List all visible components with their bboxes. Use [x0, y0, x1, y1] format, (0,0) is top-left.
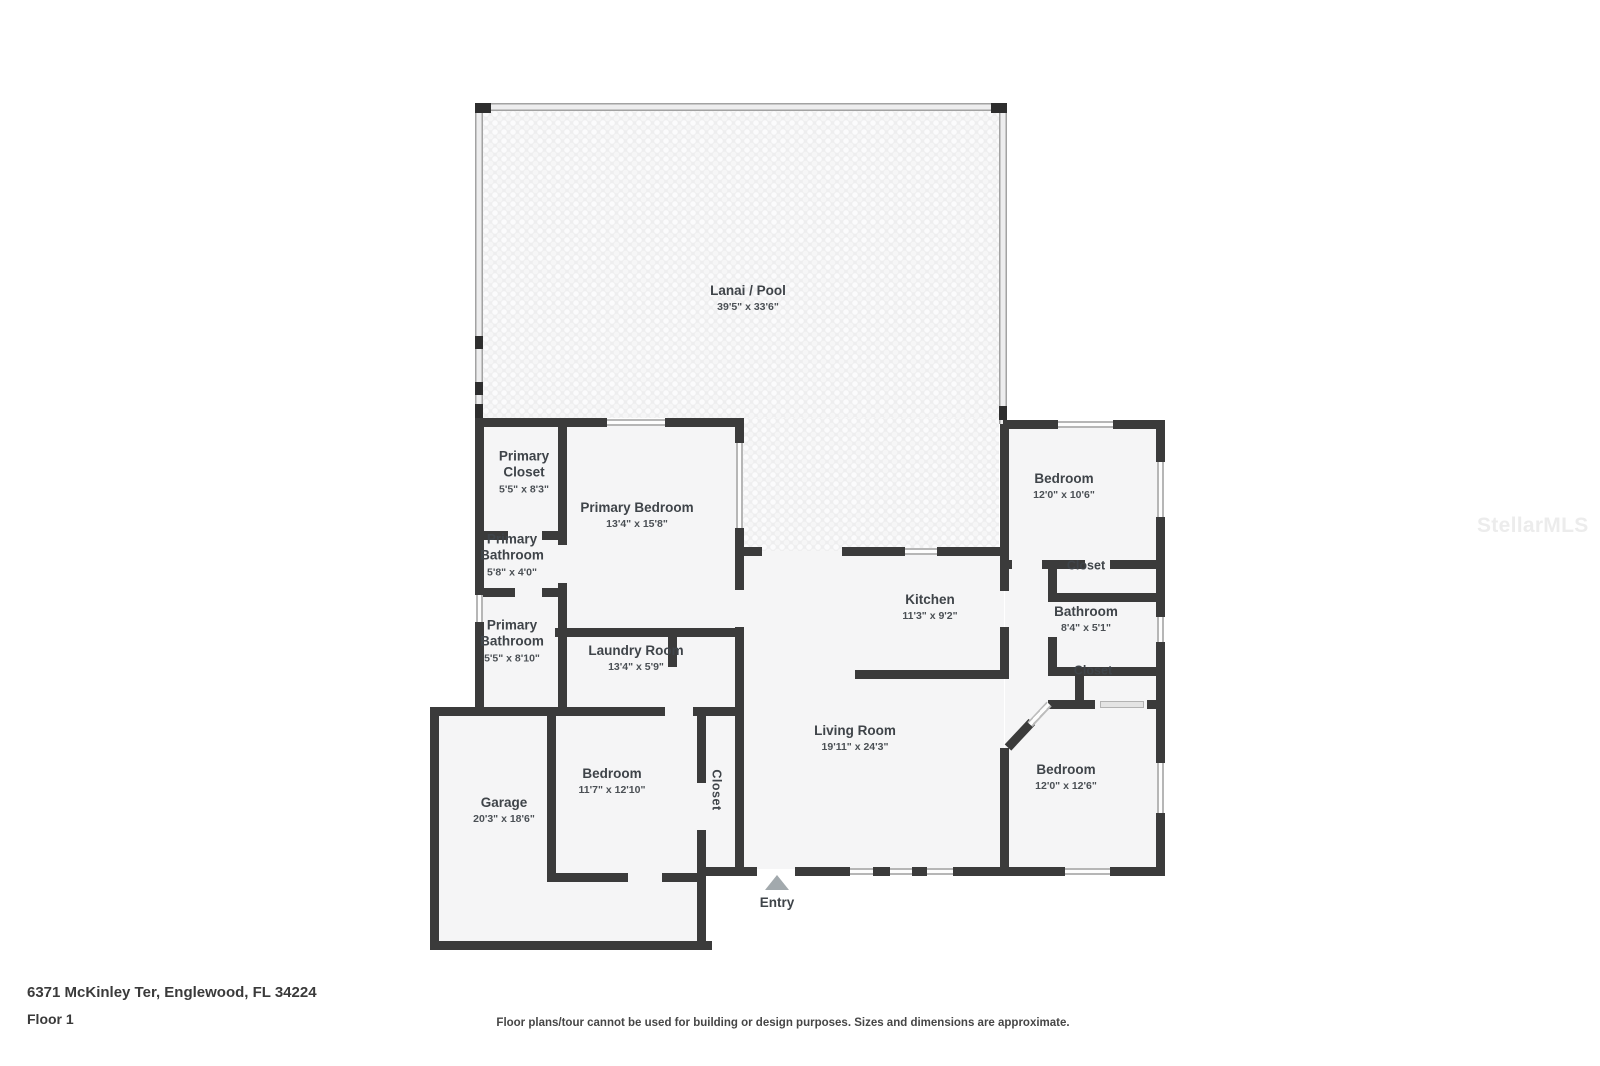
wall-segment	[430, 707, 439, 950]
screen-wall-tick	[475, 382, 483, 395]
entry-label: Entry	[760, 895, 795, 911]
room-label-bedroom-bottom-right: Bedroom 12'0" x 12'6"	[1035, 762, 1097, 792]
room-dims: 5'5" x 8'10"	[465, 652, 559, 664]
room-name: Closet	[708, 769, 723, 810]
lanai-floor-pattern	[743, 418, 999, 551]
room-name: Laundry Room	[588, 643, 683, 659]
room-name: Bedroom	[1033, 471, 1095, 487]
wall-segment	[855, 670, 1008, 679]
floor-area	[743, 551, 1004, 869]
wall-segment	[1048, 637, 1057, 676]
room-label-primary-closet: Primary Closet 5'5" x 8'3"	[482, 449, 566, 496]
wall-segment	[1048, 560, 1057, 602]
wall-segment	[1003, 420, 1058, 429]
wall-segment	[735, 418, 744, 443]
window	[1157, 617, 1164, 642]
wall-segment	[937, 547, 1008, 556]
wall-segment	[953, 867, 1008, 876]
wall-segment	[1008, 867, 1065, 876]
room-name: Lanai / Pool	[710, 283, 786, 299]
screen-wall-tick	[999, 406, 1007, 420]
room-label-primary-bathroom-lower: Primary Bathroom 5'5" x 8'10"	[465, 618, 559, 665]
wall-segment	[735, 716, 744, 867]
wall-segment	[1000, 424, 1009, 560]
room-name: Closet	[1074, 663, 1112, 678]
room-dims: 39'5" x 33'6"	[710, 301, 786, 313]
room-label-living-room: Living Room 19'11" x 24'3"	[814, 723, 896, 753]
wall-segment	[697, 707, 706, 783]
room-dims: 12'0" x 10'6"	[1033, 489, 1095, 501]
room-dims: 11'3" x 9'2"	[902, 610, 957, 622]
window	[850, 868, 873, 875]
entry-arrow-icon	[765, 875, 789, 890]
lanai-floor-pattern	[483, 111, 999, 418]
room-name: Bathroom	[1054, 604, 1118, 620]
wall-segment	[697, 830, 706, 950]
room-name: Primary Bedroom	[580, 500, 693, 516]
screen-wall	[475, 111, 483, 418]
wall-segment	[430, 941, 712, 950]
wall-segment	[665, 418, 743, 427]
wall-segment	[912, 867, 927, 876]
floor-plan-canvas: Lanai / Pool 39'5" x 33'6" Primary Close…	[0, 0, 1600, 1066]
room-dims: 12'0" x 12'6"	[1035, 780, 1097, 792]
room-name: Kitchen	[902, 592, 957, 608]
wall-segment	[558, 583, 567, 716]
room-dims: 13'4" x 5'9"	[588, 661, 683, 673]
wall-segment	[735, 627, 744, 716]
wall-segment	[555, 628, 743, 637]
room-dims: 5'5" x 8'3"	[482, 483, 566, 495]
wall-segment	[482, 588, 515, 597]
screen-wall-tick	[475, 404, 483, 418]
wall-segment	[547, 707, 556, 882]
window	[905, 548, 937, 555]
room-name: Primary Bathroom	[465, 618, 559, 651]
screen-wall-tick	[475, 103, 491, 113]
screen-wall	[475, 103, 1007, 111]
room-name: Closet	[1067, 558, 1105, 573]
watermark: StellarMLS	[1477, 514, 1589, 538]
room-label-laundry-room: Laundry Room 13'4" x 5'9"	[588, 643, 683, 673]
window	[736, 443, 743, 528]
address: 6371 McKinley Ter, Englewood, FL 34224	[27, 984, 317, 1001]
screen-wall-tick	[475, 336, 483, 349]
room-label-garage: Garage 20'3" x 18'6"	[473, 795, 535, 825]
wall-segment	[662, 873, 702, 882]
room-name: Primary Closet	[482, 449, 566, 482]
screen-wall-tick	[991, 103, 1007, 113]
room-dims: 13'4" x 15'8"	[580, 518, 693, 530]
floor-plan-geometry	[0, 0, 1600, 1066]
wall-segment	[842, 547, 905, 556]
floor-label: Floor 1	[27, 1011, 74, 1027]
room-dims: 20'3" x 18'6"	[473, 813, 535, 825]
room-label-primary-bedroom: Primary Bedroom 13'4" x 15'8"	[580, 500, 693, 530]
window	[1058, 421, 1113, 428]
wall-segment	[702, 867, 757, 876]
room-name: Entry	[760, 895, 795, 911]
wall-segment	[1156, 813, 1165, 876]
room-label-closet-1: Closet	[1067, 558, 1105, 573]
room-label-closet-2: Closet	[1074, 663, 1112, 678]
room-name: Garage	[473, 795, 535, 811]
room-dims: 11'7" x 12'10"	[579, 784, 646, 796]
window	[890, 868, 912, 875]
room-label-primary-bathroom-upper: Primary Bathroom 5'8" x 4'0"	[465, 532, 559, 579]
floor-area	[434, 711, 706, 943]
wall-segment	[1156, 642, 1165, 763]
wall-segment	[873, 867, 890, 876]
wall-segment	[1000, 627, 1009, 679]
wall-segment	[743, 547, 762, 556]
room-dims: 8'4" x 5'1"	[1054, 622, 1118, 634]
room-name: Bedroom	[579, 766, 646, 782]
window	[1157, 763, 1164, 813]
wall-segment	[735, 528, 744, 590]
screen-wall	[999, 111, 1007, 424]
room-label-lanai-pool: Lanai / Pool 39'5" x 33'6"	[710, 283, 786, 313]
wall-segment	[547, 873, 628, 882]
wall-segment	[1156, 517, 1165, 617]
room-dims: 19'11" x 24'3"	[814, 741, 896, 753]
wall-segment	[795, 867, 850, 876]
disclaimer: Floor plans/tour cannot be used for buil…	[496, 1017, 1069, 1029]
room-name: Bedroom	[1035, 762, 1097, 778]
room-name: Living Room	[814, 723, 896, 739]
window	[927, 868, 953, 875]
room-label-bedroom-top-right: Bedroom 12'0" x 10'6"	[1033, 471, 1095, 501]
wall-segment	[475, 418, 607, 427]
room-label-bedroom-bottom-middle: Bedroom 11'7" x 12'10"	[579, 766, 646, 796]
window	[607, 419, 665, 426]
room-label-bathroom: Bathroom 8'4" x 5'1"	[1054, 604, 1118, 634]
window	[1065, 868, 1110, 875]
wall-segment	[1048, 593, 1165, 602]
window	[1157, 462, 1164, 517]
room-dims: 5'8" x 4'0"	[465, 566, 559, 578]
door-leaf	[1100, 701, 1144, 708]
room-name: Primary Bathroom	[465, 532, 559, 565]
wall-segment	[1048, 700, 1095, 709]
room-label-kitchen: Kitchen 11'3" x 9'2"	[902, 592, 957, 622]
wall-segment	[1156, 420, 1165, 462]
wall-segment	[1000, 748, 1009, 867]
room-label-closet-strip: Closet	[708, 769, 723, 810]
